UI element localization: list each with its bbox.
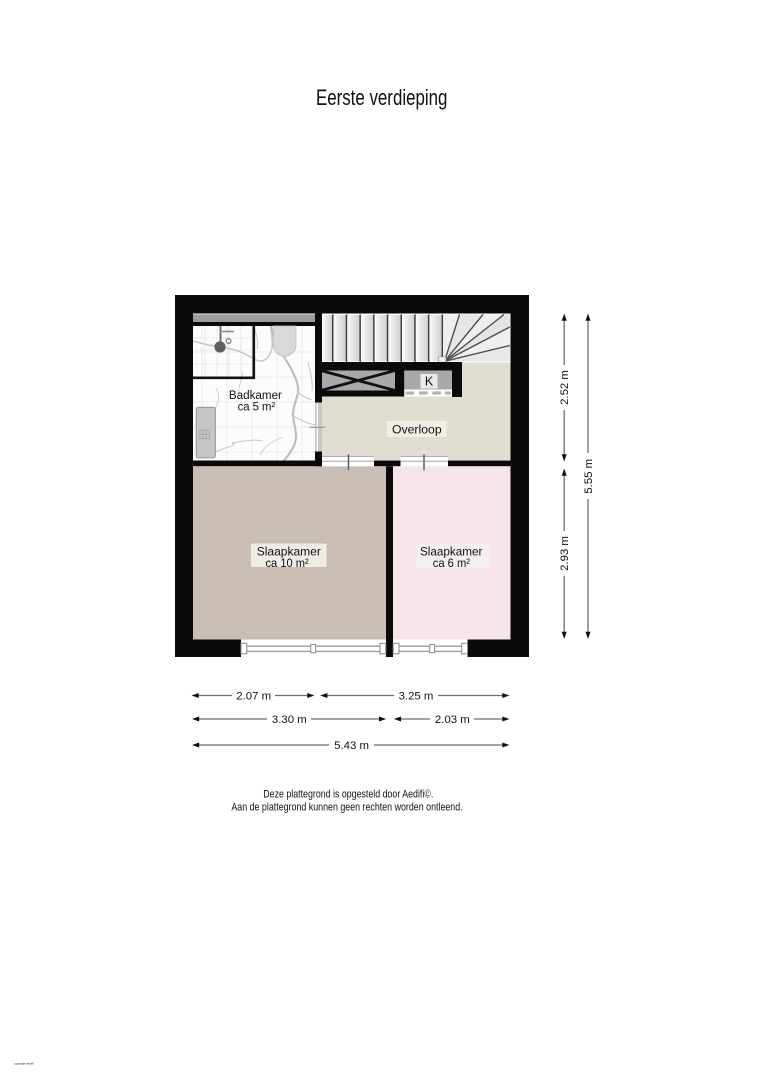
svg-text:Aan de plattegrond kunnen geen: Aan de plattegrond kunnen geen rechten w…	[231, 801, 462, 813]
svg-text:ca 10 m²: ca 10 m²	[266, 556, 309, 570]
svg-text:3.30 m: 3.30 m	[272, 714, 307, 726]
svg-text:ca 5 m²: ca 5 m²	[238, 399, 276, 413]
svg-text:2.03 m: 2.03 m	[435, 714, 470, 726]
svg-text:3.25 m: 3.25 m	[399, 691, 434, 703]
svg-text:2.52 m: 2.52 m	[559, 370, 571, 405]
svg-text:2.07 m: 2.07 m	[236, 691, 271, 703]
svg-text:5.55 m: 5.55 m	[583, 459, 595, 494]
svg-text:copyright aedifi: copyright aedifi	[14, 1062, 34, 1066]
svg-text:Eerste verdieping: Eerste verdieping	[316, 85, 448, 110]
svg-text:2.93 m: 2.93 m	[559, 536, 571, 571]
svg-text:ca 6 m²: ca 6 m²	[433, 556, 470, 570]
svg-text:Deze plattegrond is opgesteld: Deze plattegrond is opgesteld door Aedif…	[263, 789, 433, 801]
svg-text:5.43 m: 5.43 m	[334, 740, 369, 752]
svg-text:Overloop: Overloop	[392, 423, 442, 437]
svg-text:K: K	[425, 374, 434, 388]
